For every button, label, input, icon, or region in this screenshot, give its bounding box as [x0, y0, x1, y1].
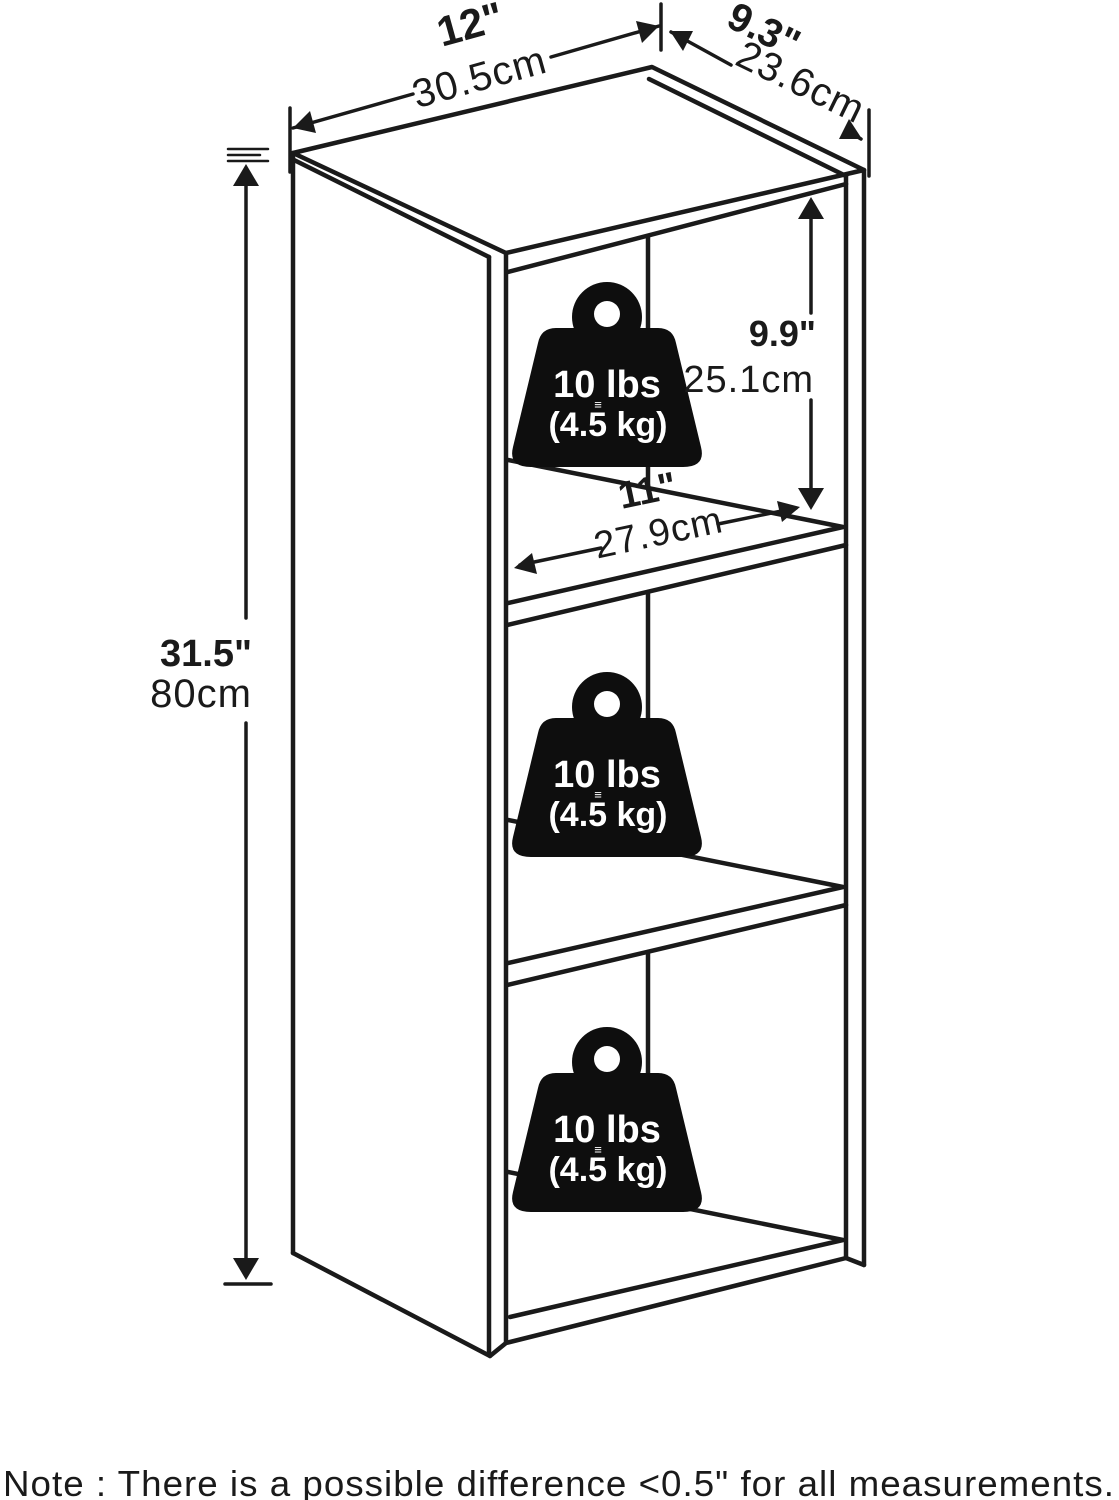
weight-handle-hole	[594, 301, 620, 327]
weight-capacity-lbs: 10 lbs	[553, 754, 661, 796]
dimension-height: 31.5" 80cm	[150, 149, 271, 1284]
cubby-height-inches-label: 9.9"	[749, 313, 816, 354]
dimension-width: 12" 30.5cm	[290, 0, 661, 172]
measurement-note: Note : There is a possible difference <0…	[3, 1463, 1115, 1500]
weight-handle-hole	[594, 691, 620, 717]
dimension-cubby-height: 9.9" 25.1cm	[683, 197, 824, 510]
weight-icon: 10 lbs ≡ (4.5 kg)	[512, 282, 702, 467]
width-cm-label: 30.5cm	[408, 38, 552, 117]
shelf-line-drawing: 10 lbs ≡ (4.5 kg) 10 lbs ≡ (4.5 kg) 10 l…	[0, 0, 1119, 1500]
weight-icon: 10 lbs ≡ (4.5 kg)	[512, 672, 702, 857]
weight-capacity-kg: (4.5 kg)	[548, 406, 667, 444]
ceiling-inner-edge	[508, 184, 846, 272]
cubby-height-cm-label: 25.1cm	[683, 359, 814, 401]
top-face-left-strip	[294, 160, 489, 257]
weight-capacity-lbs: 10 lbs	[553, 1109, 661, 1151]
weight-handle-hole	[594, 1046, 620, 1072]
dimension-cubby-width: 11" 27.9cm	[514, 465, 800, 574]
product-dimension-diagram: 10 lbs ≡ (4.5 kg) 10 lbs ≡ (4.5 kg) 10 l…	[0, 0, 1119, 1500]
weight-icon: 10 lbs ≡ (4.5 kg)	[512, 1027, 702, 1212]
right-panel-bottom-edge	[846, 1258, 864, 1265]
left-panel-bottom-edge	[293, 1253, 490, 1356]
arrowhead	[233, 164, 259, 186]
arrowhead	[798, 197, 824, 219]
weight-capacity-kg: (4.5 kg)	[548, 796, 667, 834]
arrowhead	[293, 111, 316, 133]
height-cm-label: 80cm	[150, 672, 252, 716]
height-inches-label: 31.5"	[160, 633, 252, 675]
arrowhead	[233, 1258, 259, 1280]
weight-capacity-lbs: 10 lbs	[553, 364, 661, 406]
arrowhead	[798, 488, 824, 510]
weight-capacity-kg: (4.5 kg)	[548, 1151, 667, 1189]
width-inches-label: 12"	[432, 0, 509, 56]
arrowhead	[636, 21, 659, 43]
no-stack-hatch	[228, 149, 268, 161]
